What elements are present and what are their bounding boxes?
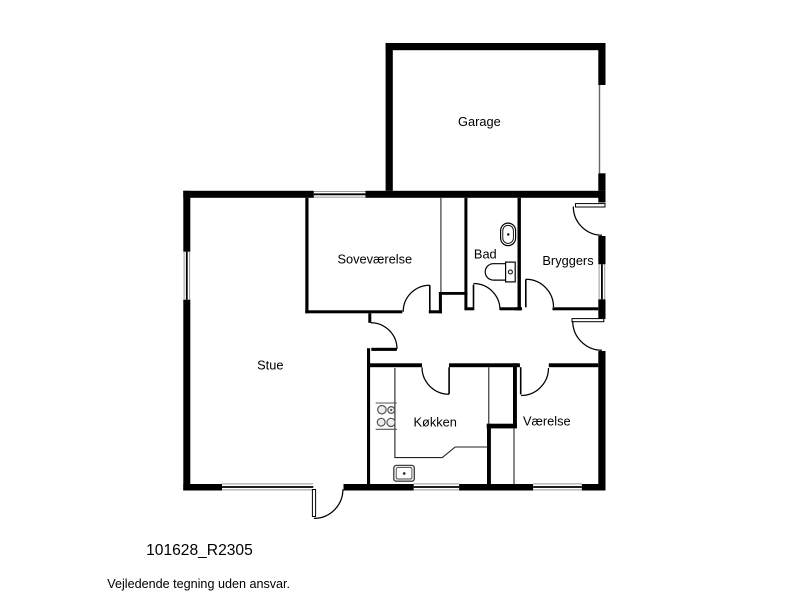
svg-text:Bryggers: Bryggers [542,253,593,268]
svg-text:Køkken: Køkken [414,414,457,429]
svg-text:Garage: Garage [458,114,501,129]
svg-text:Værelse: Værelse [523,413,571,428]
svg-text:Soveværelse: Soveværelse [337,252,412,267]
svg-text:Vejledende tegning uden ansvar: Vejledende tegning uden ansvar. [107,577,290,591]
svg-text:101628_R2305: 101628_R2305 [146,542,253,559]
svg-text:Stue: Stue [257,358,283,373]
svg-text:Bad: Bad [474,246,497,261]
